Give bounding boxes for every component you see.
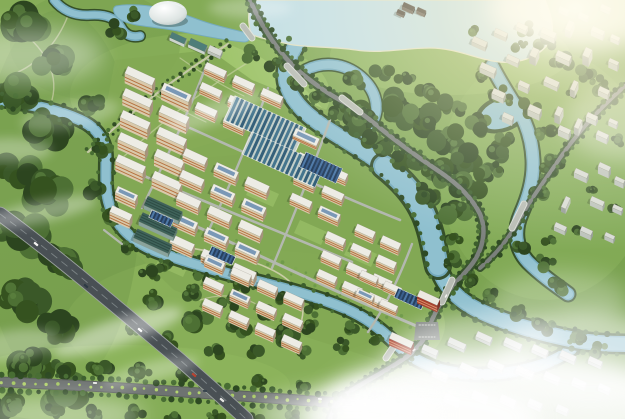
sun-glare xyxy=(0,0,625,419)
masterplan-rendering: Aerial masterplan rendering of riverside… xyxy=(0,0,625,419)
aerial-render: Aerial masterplan rendering of riverside… xyxy=(0,0,625,419)
